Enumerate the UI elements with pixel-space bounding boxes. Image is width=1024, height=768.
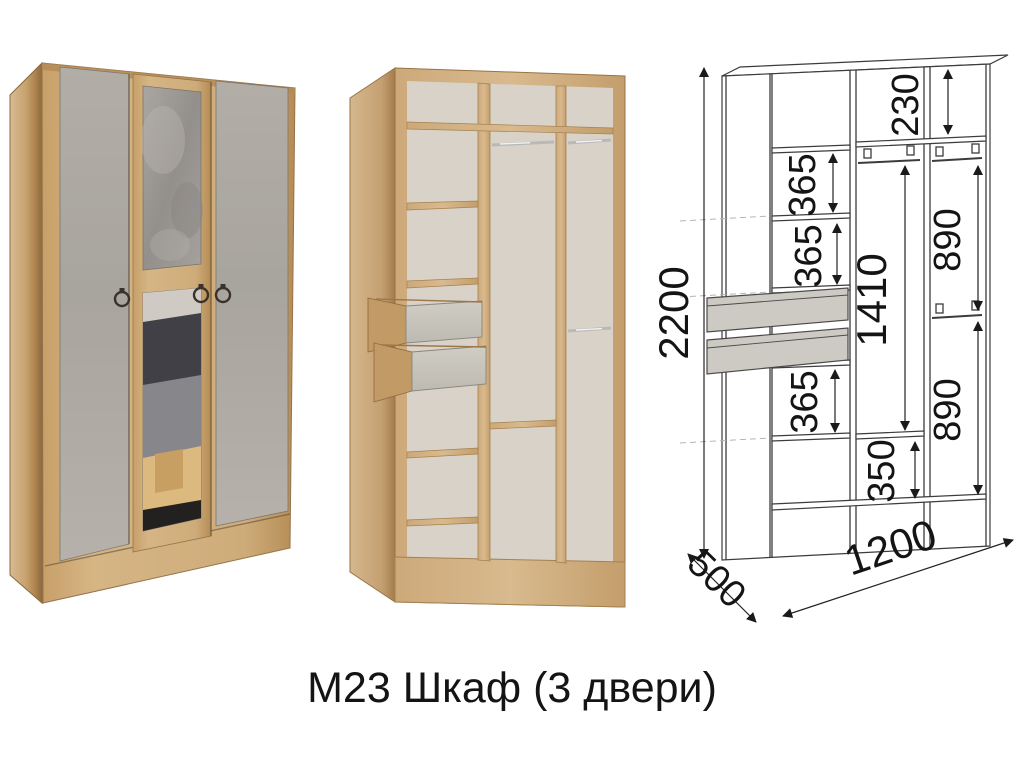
- mirror-lower: [143, 288, 201, 531]
- product-title: М23 Шкаф (3 двери): [0, 664, 1024, 713]
- wardrobe-side-panel: [10, 63, 42, 603]
- dim-overall-height: 2200: [652, 266, 697, 359]
- open-wardrobe-photo: [340, 52, 640, 612]
- base-panel: [395, 557, 625, 607]
- product-sheet: 2200 230 365 365 365 1410 350 890 890 50…: [0, 0, 1024, 768]
- drawer-1-front: [406, 301, 482, 343]
- dim-middle-hanging: 1410: [848, 253, 895, 346]
- dim-top-section: 230: [885, 73, 927, 136]
- partition-right: [556, 86, 566, 563]
- mirror-mottle: [141, 106, 185, 174]
- mirror-mottle: [150, 229, 190, 261]
- drawer-2-front: [412, 346, 486, 391]
- right-door: [216, 81, 288, 526]
- reflection-blanket: [143, 375, 201, 460]
- dim-middle-bottom: 350: [861, 439, 903, 502]
- dim-right-lower: 890: [927, 378, 969, 441]
- dim-left-gap-1: 365: [782, 153, 824, 216]
- dim-left-gap-2: 365: [788, 224, 830, 287]
- closed-wardrobe-photo: [5, 50, 305, 620]
- left-door: [60, 67, 129, 561]
- dim-right-upper: 890: [927, 208, 969, 271]
- reflection-headboard: [155, 449, 183, 493]
- mirror-mottle: [171, 182, 203, 238]
- dimension-diagram: 2200 230 365 365 365 1410 350 890 890 50…: [652, 48, 1024, 668]
- dim-left-gap-3: 365: [784, 370, 826, 433]
